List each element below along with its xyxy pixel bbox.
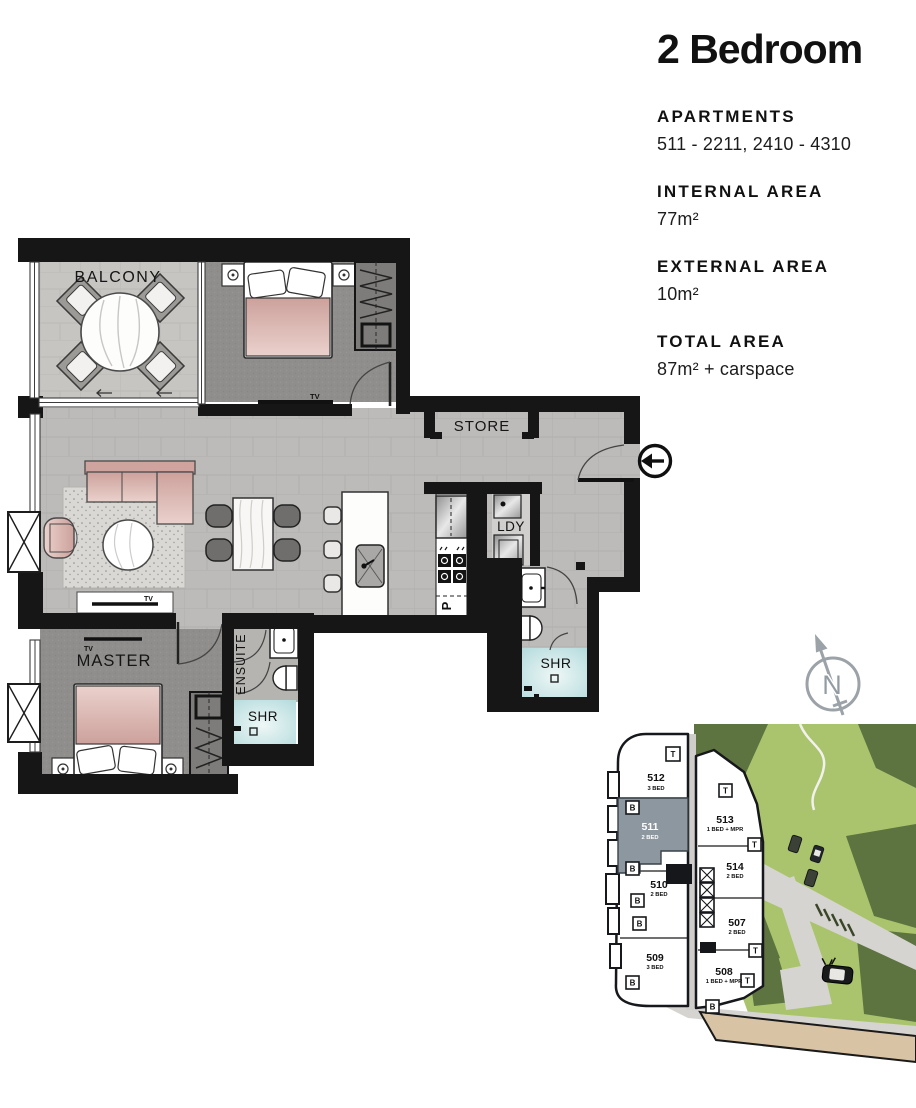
internal-area-label: INTERNAL AREA (657, 182, 909, 202)
unit-514-type: 2 BED (726, 874, 743, 880)
ensuite-label: ENSUITE (234, 633, 248, 694)
pantry-label: P (439, 601, 454, 610)
dining-table (233, 498, 273, 570)
coffee-table (103, 520, 153, 570)
unit-513-type: 1 BED + MPR (707, 827, 744, 833)
compass-north-label: N (822, 670, 842, 700)
svg-text:B: B (630, 865, 636, 874)
unit-508-number: 508 (715, 966, 733, 978)
unit-509-number: 509 (646, 952, 664, 964)
info-panel: 2 Bedroom APARTMENTS 511 - 2211, 2410 - … (657, 26, 909, 407)
floorplan-page: TV TV (0, 0, 916, 1108)
shower-ensuite-label: SHR (248, 709, 278, 724)
tv-label-bedroom2: TV (310, 392, 320, 401)
unit-510-type: 2 BED (650, 892, 667, 898)
apartments-value: 511 - 2211, 2410 - 4310 (657, 134, 909, 155)
unit-507-number: 507 (728, 917, 746, 929)
unit-514-number: 514 (726, 861, 744, 873)
svg-text:B: B (637, 920, 643, 929)
laundry: LDY (494, 495, 525, 565)
svg-text:B: B (635, 897, 641, 906)
laundry-label: LDY (497, 519, 525, 534)
kitchen-run: P (436, 494, 467, 616)
total-area-label: TOTAL AREA (657, 332, 909, 352)
info-section-apartments: APARTMENTS 511 - 2211, 2410 - 4310 (657, 107, 909, 155)
compass-needle (815, 634, 828, 653)
svg-text:T: T (723, 787, 728, 796)
unit-512-number: 512 (647, 772, 665, 784)
unit-510-number: 510 (650, 879, 668, 891)
fridge (436, 496, 467, 538)
external-area-label: EXTERNAL AREA (657, 257, 909, 277)
svg-text:T: T (671, 750, 676, 759)
total-area-value: 87m² + carspace (657, 359, 909, 380)
compass: N (807, 634, 859, 715)
floor-plan: TV TV (8, 238, 671, 794)
master-label: MASTER (77, 652, 152, 670)
svg-text:B: B (710, 1003, 716, 1012)
key-plan: B B B B B B T T T T T 512 3 BED 511 2 BE… (606, 724, 916, 1062)
info-section-internal-area: INTERNAL AREA 77m² (657, 182, 909, 230)
external-area-value: 10m² (657, 284, 909, 305)
toilet-main (521, 616, 530, 640)
unit-511-number: 511 (642, 821, 659, 833)
tv-label-living: TV (144, 596, 153, 603)
washer (494, 495, 521, 518)
unit-511-type: 2 BED (641, 835, 658, 841)
unit-513-number: 513 (716, 814, 734, 826)
store-label: STORE (454, 418, 510, 435)
page-title: 2 Bedroom (657, 26, 909, 73)
balcony-label: BALCONY (75, 269, 162, 286)
info-section-external-area: EXTERNAL AREA 10m² (657, 257, 909, 305)
svg-text:T: T (745, 977, 750, 986)
entry-arrow-icon (640, 446, 671, 477)
unit-507-type: 2 BED (728, 930, 745, 936)
svg-text:B: B (630, 979, 636, 988)
stair-core (666, 864, 692, 884)
shower-main-label: SHR (540, 655, 571, 671)
apartments-label: APARTMENTS (657, 107, 909, 127)
toilet-ensuite (286, 666, 297, 690)
unit-508-type: 1 BED + MPR (706, 979, 743, 985)
svg-text:T: T (752, 841, 757, 850)
lifts (700, 868, 714, 927)
unit-509-type: 3 BED (646, 965, 663, 971)
internal-area-value: 77m² (657, 209, 909, 230)
unit-512-type: 3 BED (647, 786, 664, 792)
balcony-table (81, 293, 159, 371)
svg-text:T: T (753, 947, 758, 956)
svg-text:B: B (630, 804, 636, 813)
info-section-total-area: TOTAL AREA 87m² + carspace (657, 332, 909, 380)
